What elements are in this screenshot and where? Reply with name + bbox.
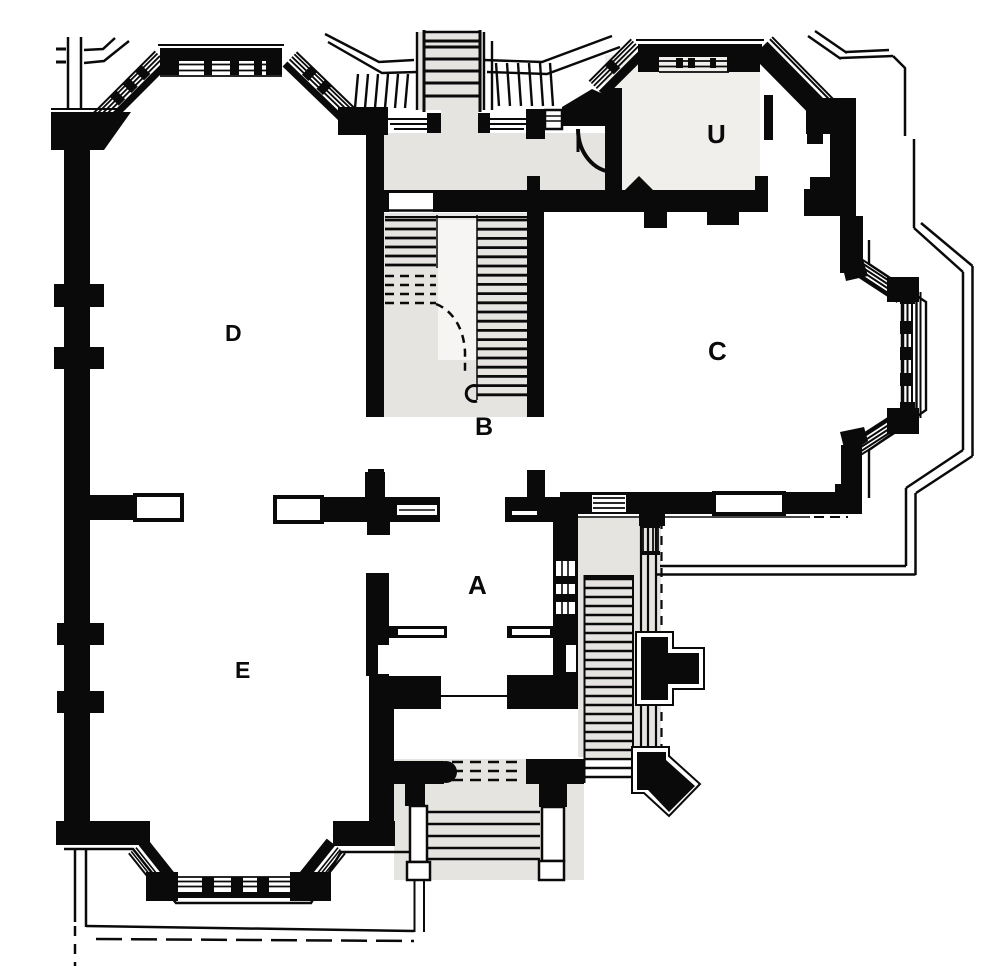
svg-text:A: A <box>468 570 487 600</box>
svg-text:C: C <box>708 336 727 366</box>
svg-text:D: D <box>225 320 242 346</box>
svg-text:E: E <box>235 657 250 683</box>
svg-text:U: U <box>707 119 726 149</box>
svg-text:B: B <box>475 413 493 441</box>
